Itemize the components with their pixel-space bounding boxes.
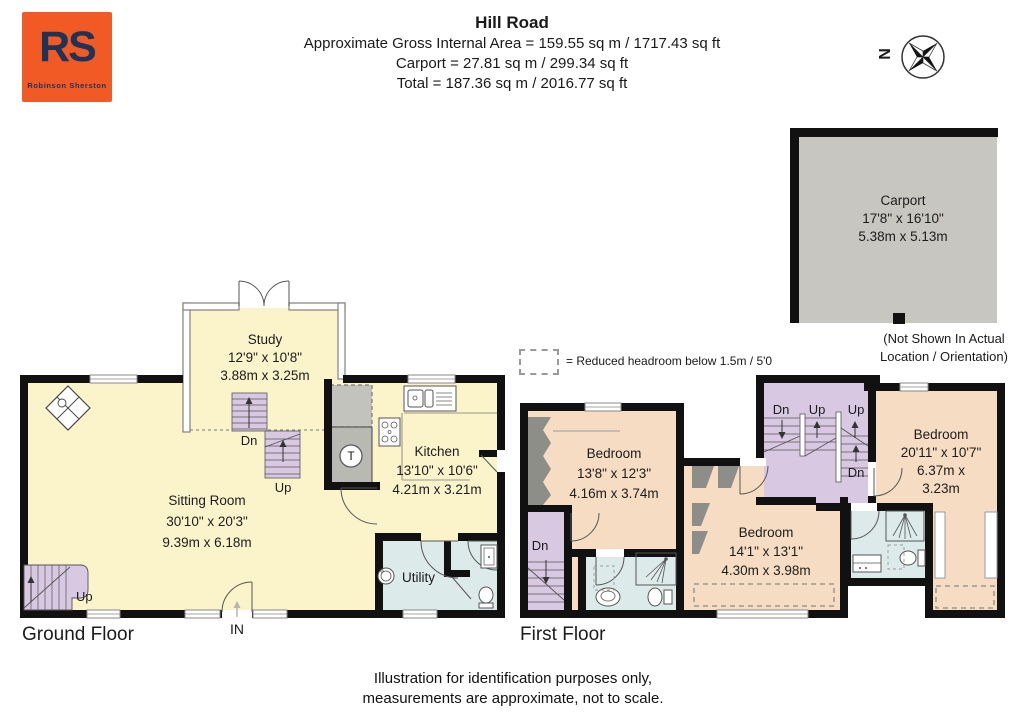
room-dims-metric: 3.88m x 3.25m — [220, 367, 309, 385]
tank-cupboard — [330, 385, 372, 487]
legend-text: = Reduced headroom below 1.5m / 5'0 — [566, 354, 772, 368]
ensuite-toilet-icon — [900, 550, 925, 566]
room-name: Bedroom — [569, 444, 658, 464]
room-dims-metric: 6.37m x 3.23m — [900, 462, 983, 498]
landing-up2-label: Up — [848, 402, 865, 417]
sitting-room-label: Sitting Room 30'10" x 20'3" 9.39m x 6.18… — [162, 490, 251, 553]
room-dims-imperial: 17'8" x 16'10" — [858, 210, 947, 228]
ground-floor-label: Ground Floor — [22, 624, 134, 646]
kitchen-sink-icon — [404, 386, 456, 411]
wc-toilet-icon — [479, 587, 493, 608]
bedroom3-label: Bedroom 20'11" x 10'7" 6.37m x 3.23m — [900, 426, 983, 498]
floorplan-drawing — [0, 0, 1024, 723]
room-dims-metric: 4.30m x 3.98m — [721, 561, 810, 580]
carport-note-line1: (Not Shown In Actual — [883, 330, 1004, 348]
carport-area-line: Carport = 27.81 sq m / 299.34 sq ft — [396, 55, 628, 72]
agency-logo: RS Robinson Sherston — [22, 12, 112, 102]
room-dims-imperial: 20'11" x 10'7" — [900, 444, 983, 462]
landing-dn2-label: Dn — [848, 465, 865, 480]
room-dims-metric: 9.39m x 6.18m — [162, 532, 251, 553]
room-name: Kitchen — [392, 442, 481, 461]
disclaimer-line2: measurements are approximate, not to sca… — [363, 689, 664, 709]
room-dims-imperial: 30'10" x 20'3" — [162, 511, 251, 532]
entrance-label: IN — [230, 621, 244, 637]
washing-machine-icon — [378, 568, 394, 584]
bathroom-sink-icon — [596, 588, 620, 606]
total-area-line: Total = 187.36 sq m / 2016.77 sq ft — [397, 75, 628, 92]
compass-icon — [902, 36, 944, 78]
tank-label: T — [347, 449, 354, 463]
disclaimer-line1: Illustration for identification purposes… — [374, 669, 652, 689]
room-dims-imperial: 13'8" x 12'3" — [569, 464, 658, 484]
room-dims-metric: 5.38m x 5.13m — [858, 228, 947, 246]
compass-north-label: N — [877, 48, 895, 60]
gross-area-line: Approximate Gross Internal Area = 159.55… — [304, 35, 720, 52]
kitchen-label: Kitchen 13'10" x 10'6" 4.21m x 3.21m — [392, 442, 481, 499]
room-dims-imperial: 13'10" x 10'6" — [392, 461, 481, 480]
gf-stairs-dn-label: Dn — [241, 433, 258, 448]
room-name: Carport — [858, 192, 947, 210]
room-name: Bedroom — [900, 426, 983, 444]
logo-initials: RS — [22, 26, 112, 69]
landing-dn-label: Dn — [773, 402, 790, 417]
room-name: Study — [220, 331, 309, 349]
ff-stairs-dn-label: Dn — [532, 538, 549, 553]
room-dims-metric: 4.16m x 3.74m — [569, 484, 658, 504]
room-dims-imperial: 14'1" x 13'1" — [721, 542, 810, 561]
room-dims-metric: 4.21m x 3.21m — [392, 480, 481, 499]
bathroom-toilet-icon — [648, 588, 672, 606]
wc-sink-icon — [481, 545, 497, 568]
room-name: Bedroom — [721, 523, 810, 542]
room-name: Sitting Room — [162, 490, 251, 511]
bedroom2-label: Bedroom 14'1" x 13'1" 4.30m x 3.98m — [721, 523, 810, 580]
ensuite-sink-icon — [853, 555, 881, 572]
reduced-headroom-legend-swatch — [519, 349, 559, 375]
gf-stairs-up-label: Up — [275, 480, 292, 495]
bedroom1-label: Bedroom 13'8" x 12'3" 4.16m x 3.74m — [569, 444, 658, 504]
gf-stairs-dn — [232, 393, 267, 431]
gf-stairs-up — [265, 431, 300, 478]
page-title: Hill Road — [475, 13, 549, 33]
french-doors — [239, 281, 289, 306]
gf-stairs-up-left-label: Up — [76, 589, 93, 604]
carport-label: Carport 17'8" x 16'10" 5.38m x 5.13m — [858, 192, 947, 246]
landing-up-label: Up — [809, 402, 826, 417]
carport-post — [893, 313, 905, 324]
first-floor-label: First Floor — [520, 624, 606, 646]
room-dims-imperial: 12'9" x 10'8" — [220, 349, 309, 367]
logo-name: Robinson Sherston — [22, 81, 112, 90]
utility-label: Utility — [402, 570, 435, 585]
study-label: Study 12'9" x 10'8" 3.88m x 3.25m — [220, 331, 309, 385]
floorplan-page: RS Robinson Sherston Hill Road Approxima… — [0, 0, 1024, 723]
carport-note-line2: Location / Orientation) — [880, 348, 1008, 366]
